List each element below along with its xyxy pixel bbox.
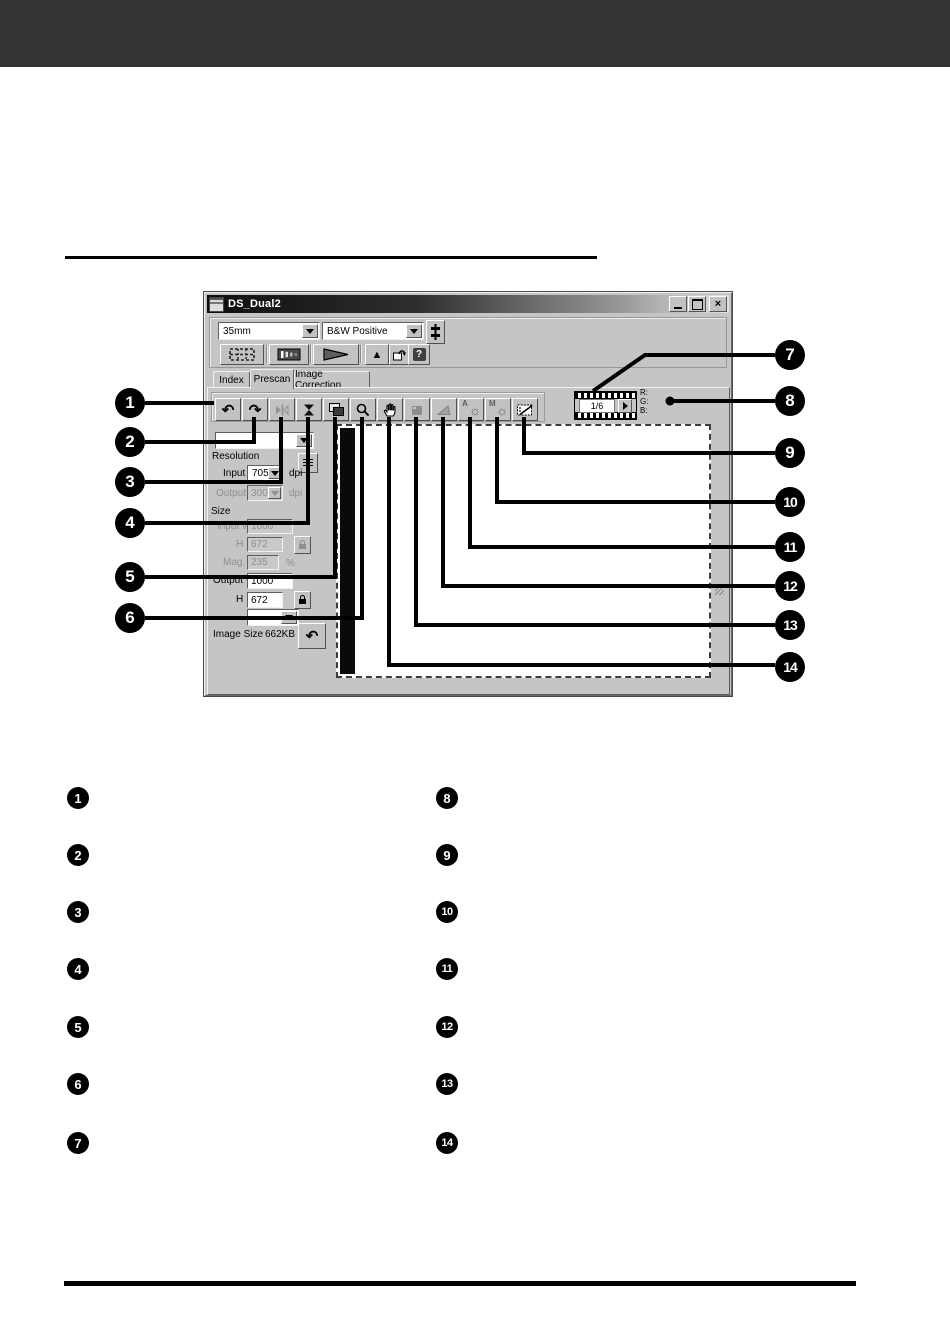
film-format-select[interactable]: 35mm	[218, 322, 320, 340]
tab-prescan-label: Prescan	[254, 374, 291, 385]
preview-area[interactable]	[336, 424, 711, 678]
input-lock-button	[294, 536, 311, 554]
chevron-down-icon[interactable]	[406, 324, 422, 338]
output-w-field[interactable]: 1000	[247, 573, 293, 589]
grab-button[interactable]	[377, 398, 403, 421]
chevron-down-icon[interactable]	[296, 434, 312, 447]
frame-indicator: 1/6	[574, 391, 637, 420]
rotate-right-icon: ↷	[249, 401, 262, 419]
titlebar: DS_Dual2 ×	[207, 295, 729, 313]
input-label: Input	[223, 468, 245, 479]
callout-3: 3	[115, 467, 145, 497]
tab-image-correction[interactable]: Image Correction	[294, 371, 370, 388]
level-tool-button[interactable]	[431, 398, 457, 421]
lock-icon	[299, 544, 306, 549]
film-perforation-top	[575, 392, 636, 399]
crop-area-icon	[409, 402, 425, 418]
manual-exposure-button[interactable]: M☼	[485, 398, 511, 421]
legend-7: 7	[67, 1132, 89, 1154]
mag-field: 235	[247, 555, 279, 570]
size-label: Size	[211, 506, 230, 517]
callout-4: 4	[115, 508, 145, 538]
page-header-band	[0, 0, 950, 67]
mag-label: Mag.	[223, 557, 245, 568]
legend-13: 13	[436, 1073, 458, 1095]
magnifier-icon	[355, 402, 371, 418]
callout-7: 7	[775, 340, 805, 370]
legend-9: 9	[436, 844, 458, 866]
zoom-button[interactable]	[350, 398, 376, 421]
prescan-button[interactable]	[269, 344, 309, 365]
scan-button[interactable]	[313, 344, 359, 365]
mag-unit-label: %	[286, 558, 295, 569]
undo-icon: ↶	[306, 627, 319, 645]
wedge-icon	[436, 402, 452, 418]
chevron-down-icon[interactable]	[268, 467, 281, 479]
footer-rule	[64, 1281, 856, 1286]
manual-exposure-icon: M☼	[489, 401, 507, 419]
callout-9: 9	[775, 438, 805, 468]
input-w-field: 1000	[247, 519, 293, 534]
callout-11: 11	[775, 532, 805, 562]
auto-exposure-icon: A☼	[462, 401, 480, 419]
auto-exposure-button[interactable]: A☼	[458, 398, 484, 421]
help-button[interactable]: ?	[408, 344, 430, 365]
callout-8: 8	[775, 386, 805, 416]
flip-vertical-button[interactable]	[296, 398, 322, 421]
legend-11: 11	[436, 958, 458, 980]
arrow-right-icon	[623, 402, 628, 410]
chevron-down-icon[interactable]	[281, 611, 297, 624]
scan-triangle-icon	[322, 347, 350, 362]
callout-14: 14	[775, 652, 805, 682]
image-size-value: 662KB	[265, 629, 295, 640]
chevron-down-icon[interactable]	[302, 324, 318, 338]
job-select[interactable]	[215, 432, 314, 449]
output-lock-button[interactable]	[294, 591, 311, 609]
window-title: DS_Dual2	[228, 298, 281, 310]
input-unit-label: dpi	[289, 468, 302, 479]
rgb-b-label: B:	[640, 406, 648, 415]
close-button[interactable]: ×	[709, 296, 727, 312]
full-screen-button[interactable]	[323, 398, 349, 421]
main-toolbar: 35mm B&W Positive	[209, 317, 727, 368]
input-resolution-value: 705	[252, 468, 269, 479]
manual-page: DS_Dual2 × 35mm B&W Positive	[0, 0, 950, 1344]
prescan-image	[340, 428, 355, 674]
tab-index[interactable]: Index	[213, 371, 250, 388]
maximize-button[interactable]	[688, 296, 706, 312]
chevron-down-icon	[268, 487, 281, 499]
legend-3: 3	[67, 901, 89, 923]
callout-5: 5	[115, 562, 145, 592]
output-resolution-select: 300	[247, 485, 283, 501]
crop-tool-button[interactable]	[404, 398, 430, 421]
rgb-g-label: G:	[640, 397, 648, 406]
section-title-rule	[65, 256, 597, 259]
tab-index-label: Index	[219, 375, 243, 386]
film-perforation-bottom	[575, 412, 636, 419]
levels-slider-icon	[429, 323, 442, 341]
flip-vertical-icon	[301, 402, 317, 418]
film-type-value: B&W Positive	[327, 326, 388, 337]
legend-5: 5	[67, 1016, 89, 1038]
output-unit-label: dpi	[289, 488, 302, 499]
legend-8: 8	[436, 787, 458, 809]
input-h-field: 672	[247, 537, 283, 552]
callout-6: 6	[115, 603, 145, 633]
input-h-label: H	[236, 539, 243, 550]
flip-horizontal-icon	[274, 402, 290, 418]
output-resolution-value: 300	[251, 488, 268, 499]
eject-icon: ▲	[372, 349, 383, 361]
rotate-left-icon: ↶	[222, 401, 235, 419]
image-size-label: Image Size	[213, 629, 263, 640]
minimize-button[interactable]	[669, 296, 687, 312]
lock-icon	[299, 599, 306, 604]
flip-horizontal-button[interactable]	[269, 398, 295, 421]
eject-button[interactable]: ▲	[365, 344, 389, 365]
unit-select[interactable]	[247, 609, 299, 626]
close-icon: ×	[715, 299, 721, 309]
callout-2: 2	[115, 427, 145, 457]
resize-grip[interactable]	[715, 586, 724, 595]
film-format-value: 35mm	[223, 326, 251, 337]
levels-adjust-button[interactable]	[426, 320, 445, 344]
hand-icon	[382, 402, 398, 418]
minimize-icon	[674, 307, 682, 309]
window-arrow-icon	[392, 348, 406, 362]
film-type-select[interactable]: B&W Positive	[322, 322, 424, 340]
output-h-label: H	[236, 594, 243, 605]
callout-12: 12	[775, 571, 805, 601]
rgb-r-label: R:	[640, 388, 648, 397]
legend-6: 6	[67, 1073, 89, 1095]
callout-13: 13	[775, 610, 805, 640]
reset-button[interactable]: ↶	[298, 623, 326, 649]
help-icon: ?	[413, 348, 426, 361]
index-scan-button[interactable]	[220, 344, 264, 365]
legend-14: 14	[436, 1132, 458, 1154]
rotate-right-button[interactable]: ↷	[242, 398, 268, 421]
index-frames-icon	[229, 348, 255, 361]
preferences-button[interactable]	[389, 344, 409, 365]
density-wedge-icon	[277, 348, 301, 361]
callout-1: 1	[115, 388, 145, 418]
output-label: Output	[216, 488, 246, 499]
frame-number: 1/6	[579, 399, 615, 413]
tab-prescan[interactable]: Prescan	[250, 369, 294, 389]
callout-10: 10	[775, 487, 805, 517]
legend-4: 4	[67, 958, 89, 980]
legend-1: 1	[67, 787, 89, 809]
legend-10: 10	[436, 901, 458, 923]
output-h-field[interactable]: 672	[247, 592, 283, 608]
app-window: DS_Dual2 × 35mm B&W Positive	[203, 291, 733, 697]
list-icon	[303, 459, 313, 468]
input-resolution-select[interactable]: 705	[247, 465, 283, 481]
app-icon	[209, 297, 224, 312]
resolution-label: Resolution	[212, 451, 259, 462]
maximize-icon	[692, 299, 703, 310]
rotate-left-button[interactable]: ↶	[215, 398, 241, 421]
scan-area-icon	[516, 402, 534, 418]
next-frame-button[interactable]	[618, 399, 632, 413]
monitor-windows-icon	[328, 402, 345, 418]
legend-2: 2	[67, 844, 89, 866]
scan-area-button[interactable]	[512, 398, 538, 421]
legend-12: 12	[436, 1016, 458, 1038]
prescan-settings-panel: Resolution Input 705 dpi Output 300 dpi …	[210, 424, 332, 682]
